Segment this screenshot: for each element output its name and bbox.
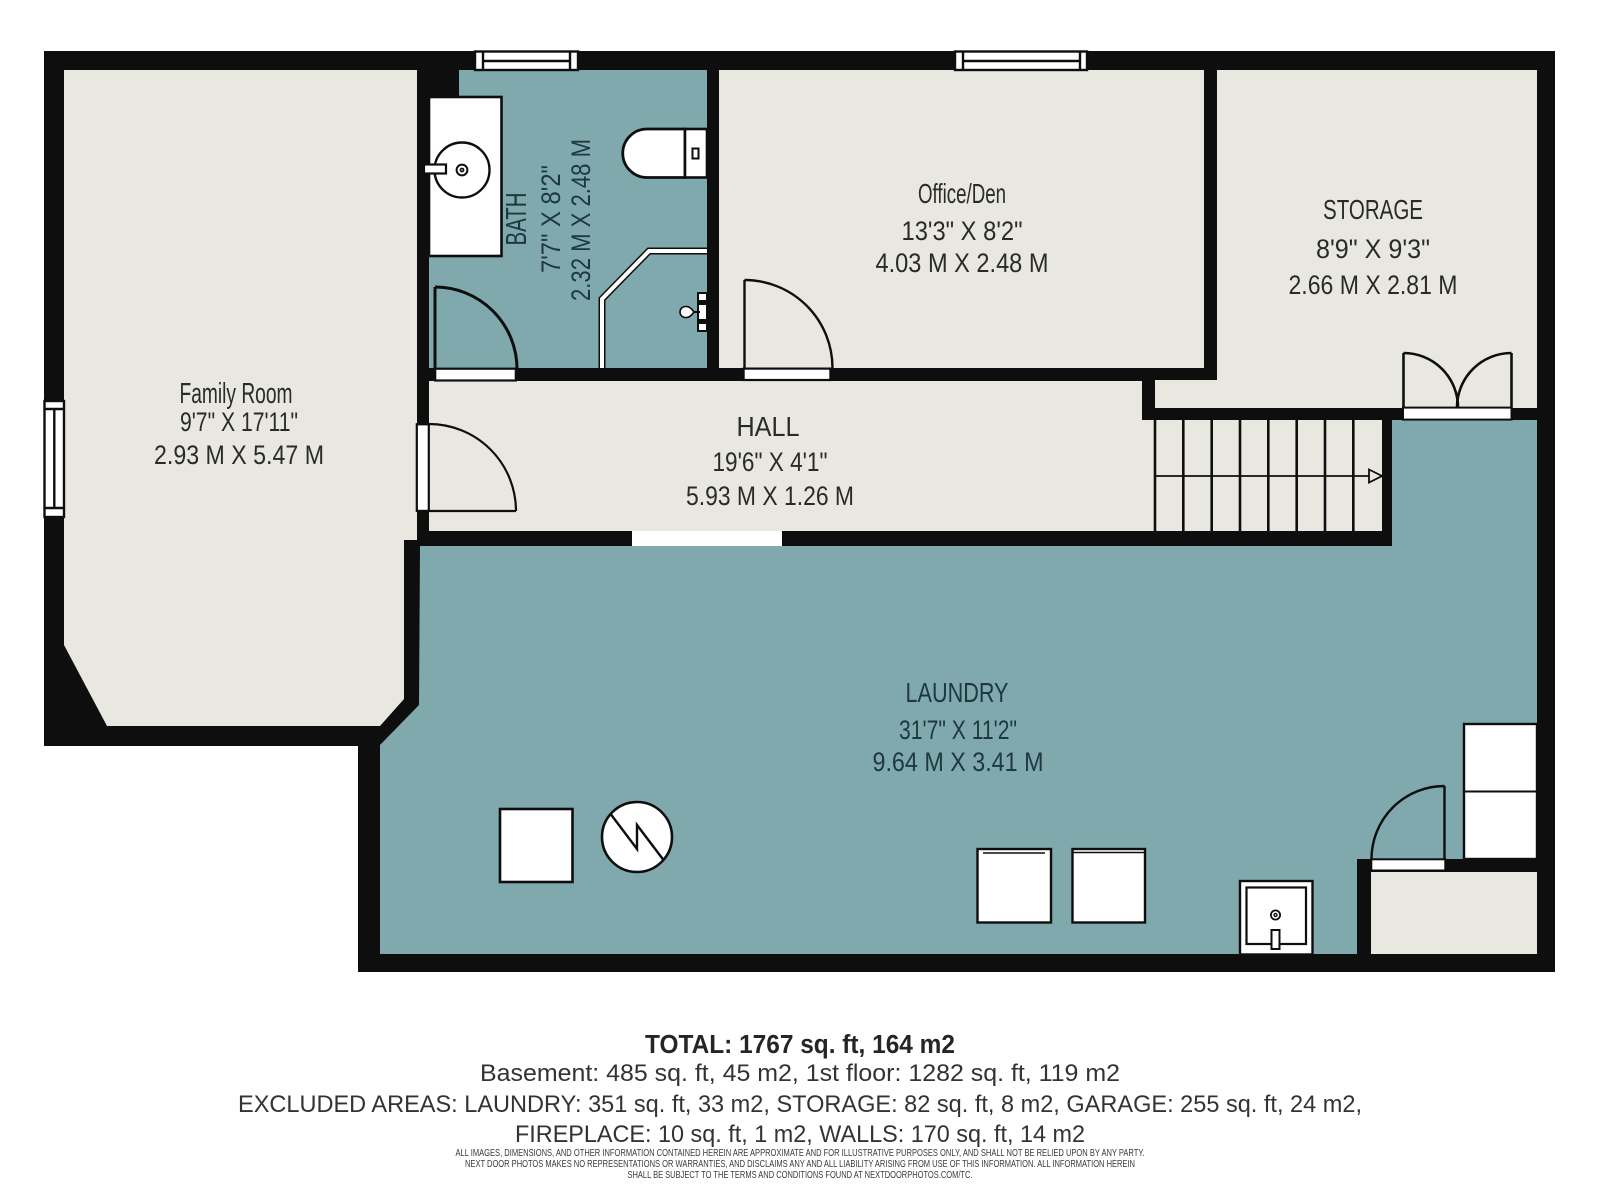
svg-text:5.93 M X 1.26 M: 5.93 M X 1.26 M [686,481,854,511]
svg-text:31'7" X 11'2": 31'7" X 11'2" [899,715,1017,745]
svg-text:13'3" X 8'2": 13'3" X 8'2" [902,216,1023,246]
svg-text:2.66 M X 2.81 M: 2.66 M X 2.81 M [1289,270,1458,300]
svg-text:LAUNDRY: LAUNDRY [906,677,1009,708]
svg-text:9'7" X 17'11": 9'7" X 17'11" [180,407,298,437]
svg-text:Basement: 485 sq. ft, 45 m2, 1: Basement: 485 sq. ft, 45 m2, 1st floor: … [480,1060,1120,1087]
svg-text:TOTAL: 1767 sq. ft, 164 m2: TOTAL: 1767 sq. ft, 164 m2 [645,1031,955,1059]
svg-text:9.64 M X 3.41 M: 9.64 M X 3.41 M [873,747,1044,777]
svg-text:FIREPLACE: 10 sq. ft, 1 m2, WA: FIREPLACE: 10 sq. ft, 1 m2, WALLS: 170 s… [515,1121,1085,1148]
svg-text:STORAGE: STORAGE [1323,194,1423,225]
svg-text:19'6" X 4'1": 19'6" X 4'1" [713,447,828,477]
svg-text:EXCLUDED AREAS: LAUNDRY: 351 s: EXCLUDED AREAS: LAUNDRY: 351 sq. ft, 33 … [238,1091,1362,1118]
svg-text:4.03 M X 2.48 M: 4.03 M X 2.48 M [876,248,1049,278]
svg-text:Office/Den: Office/Den [918,178,1006,209]
svg-text:7'7" X 8'2": 7'7" X 8'2" [536,165,566,273]
svg-text:2.93 M X 5.47 M: 2.93 M X 5.47 M [154,440,324,470]
svg-text:BATH: BATH [501,193,533,246]
svg-text:2.32 M X 2.48 M: 2.32 M X 2.48 M [566,139,596,301]
svg-text:HALL: HALL [737,411,800,442]
svg-text:Family Room: Family Room [180,378,293,410]
svg-text:8'9" X 9'3": 8'9" X 9'3" [1316,234,1430,264]
svg-text:SHALL BE SUBJECT TO THE TERMS: SHALL BE SUBJECT TO THE TERMS AND CONDIT… [628,1169,973,1181]
